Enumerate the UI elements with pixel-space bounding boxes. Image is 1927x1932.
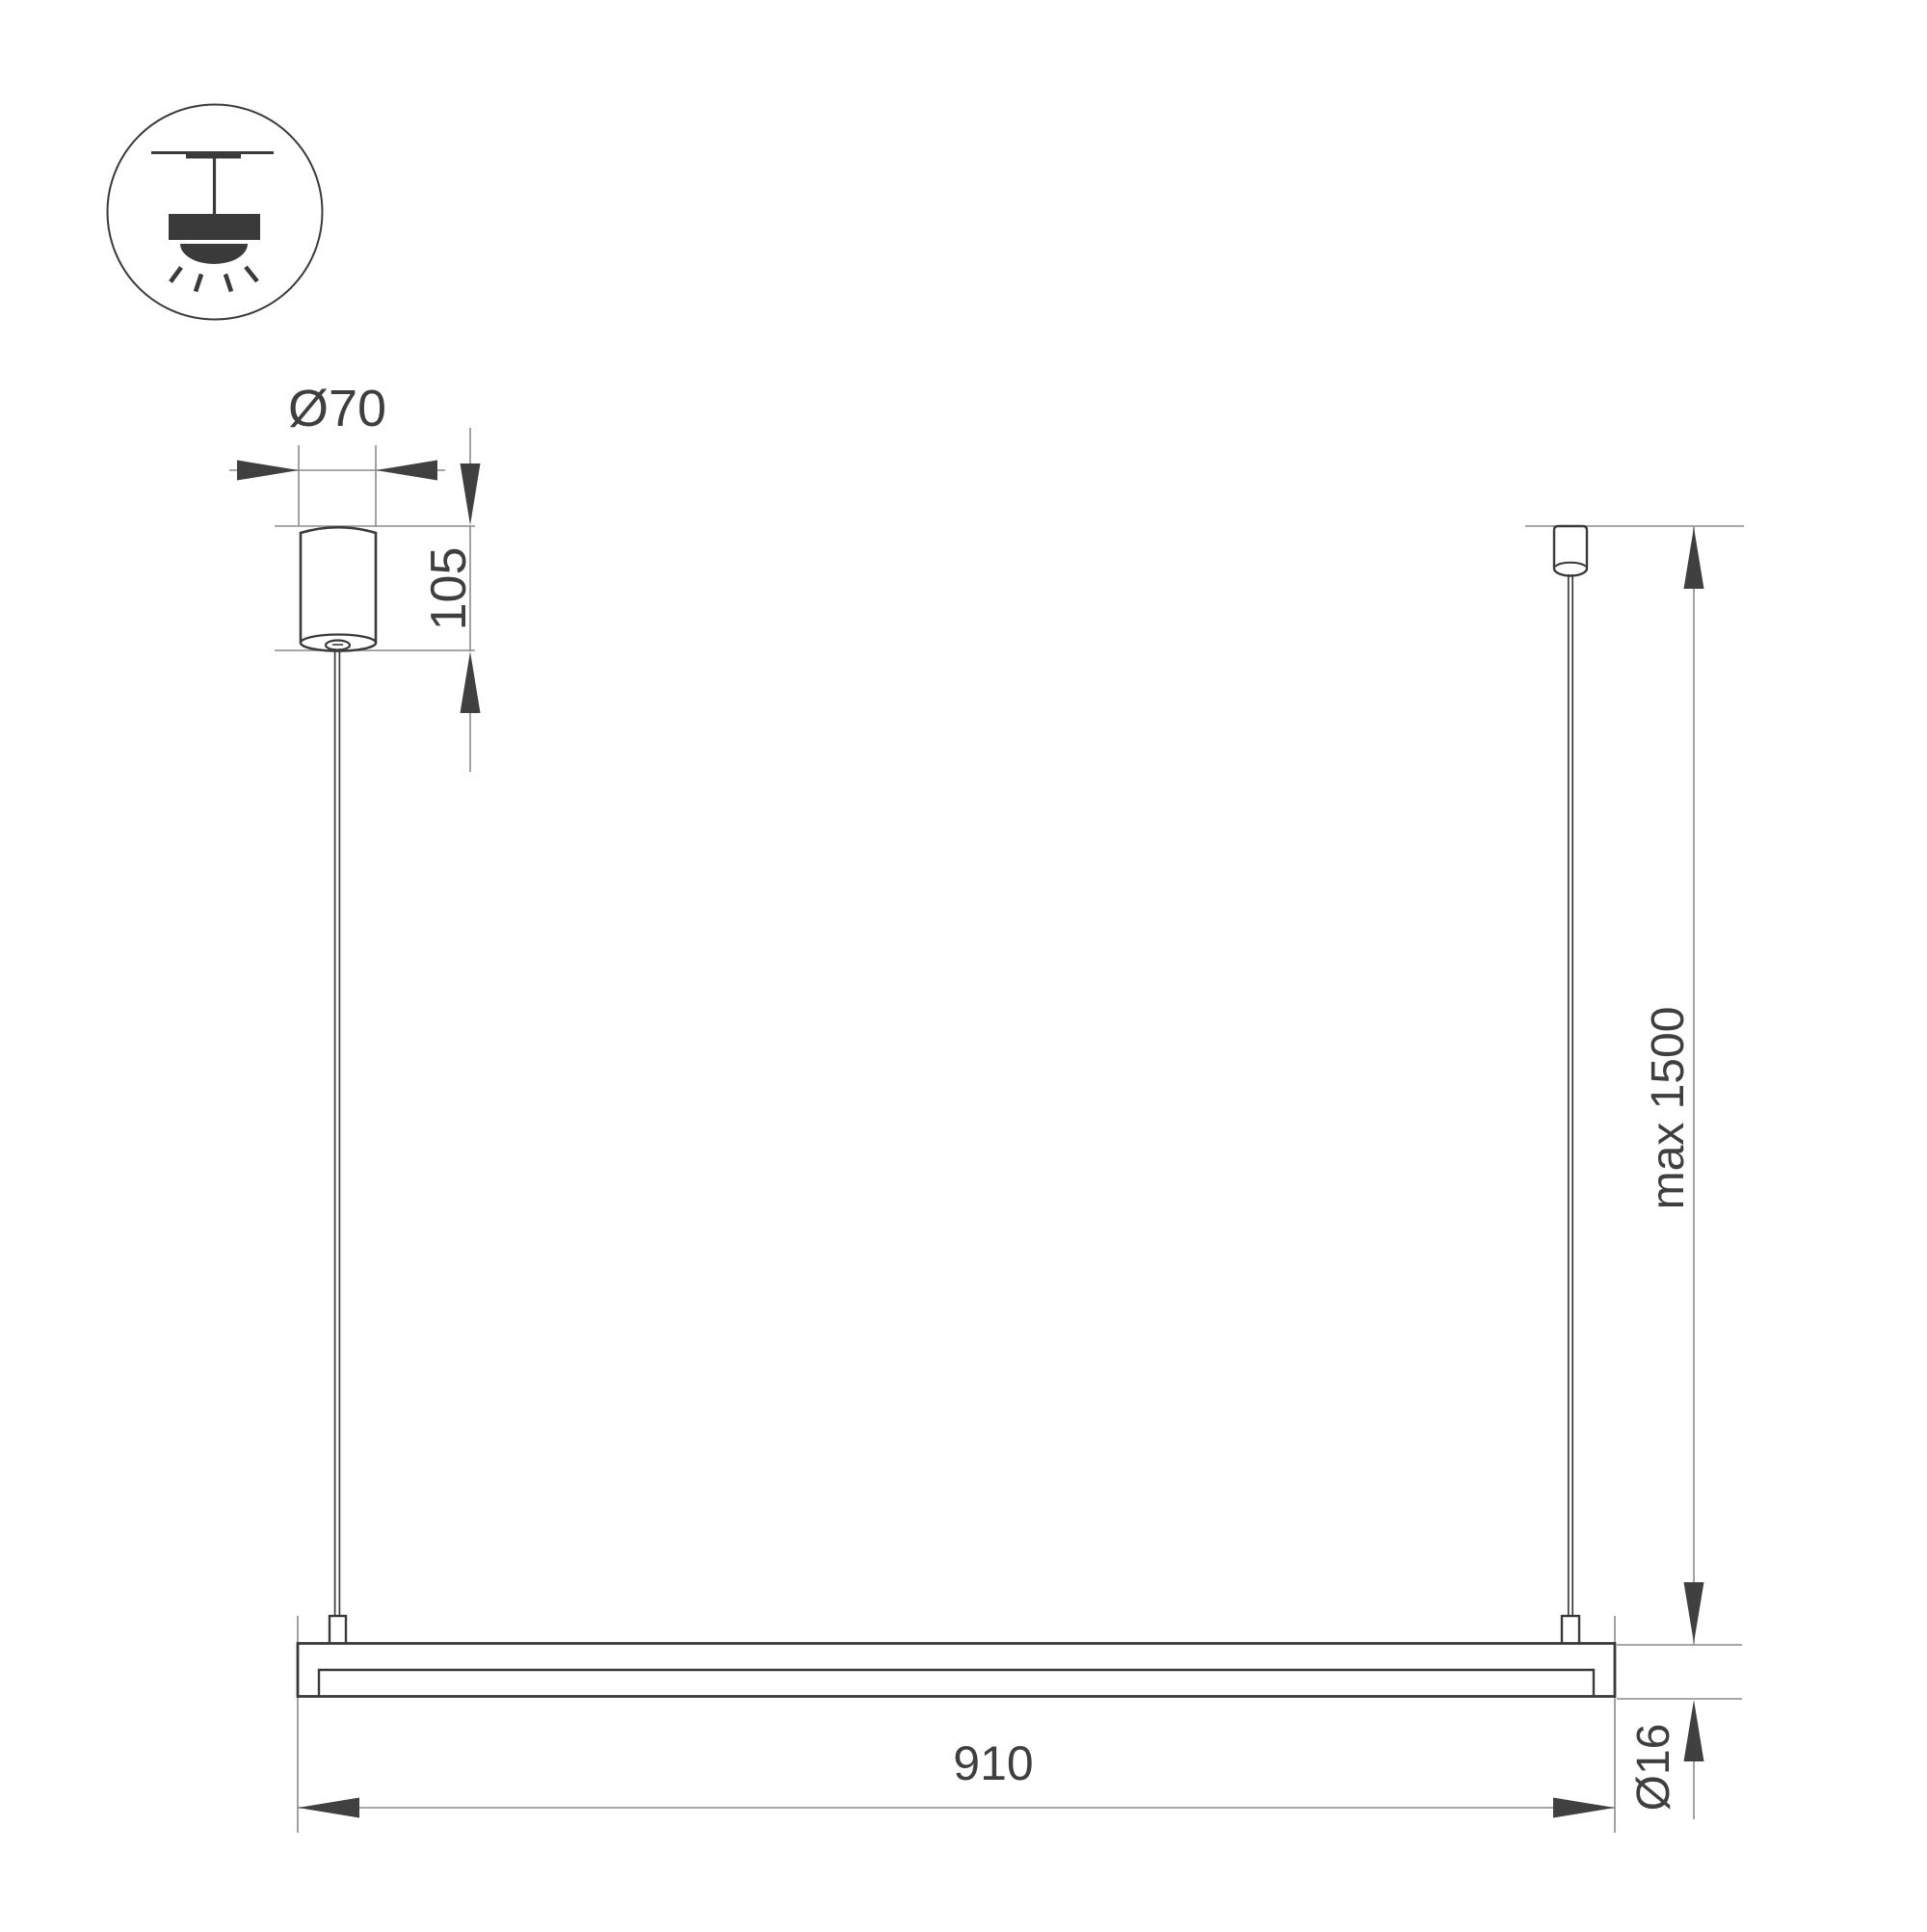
light-ray <box>196 275 201 292</box>
wire-lines <box>1569 574 1572 1616</box>
wire-grip-right <box>1562 1616 1579 1645</box>
canopy-right <box>1554 526 1587 576</box>
canopy-body <box>301 527 376 650</box>
technical-drawing-page: Ø70 105 max 1500 910 Ø16 <box>0 0 1927 1927</box>
arrow-right-icon <box>237 461 299 481</box>
arrow-up-icon <box>461 651 481 713</box>
fixture-length-label: 910 <box>953 1736 1033 1790</box>
arrow-up-icon <box>1684 1700 1704 1761</box>
icon-fixture-body <box>169 214 260 240</box>
arrow-down-icon <box>461 463 481 525</box>
canopy-body <box>1554 526 1587 576</box>
suspension-wire-right <box>1569 574 1572 1616</box>
light-ray <box>246 267 257 281</box>
suspension-wire-left <box>335 648 340 1616</box>
dimension-arrows <box>237 461 1704 1818</box>
arrow-left-icon <box>298 1798 359 1818</box>
icon-light-rays <box>171 267 257 292</box>
dimension-lines <box>229 428 1744 1833</box>
light-ray <box>225 275 231 292</box>
canopy-left <box>301 527 376 650</box>
canopy-diameter-label: Ø70 <box>288 380 386 437</box>
arrow-right-icon <box>1553 1798 1615 1818</box>
arrow-up-icon <box>1684 527 1704 589</box>
ceiling-pendant-mount-icon <box>108 105 323 320</box>
arrow-left-icon <box>376 461 437 481</box>
icon-canopy-plate <box>186 151 241 159</box>
light-ray <box>171 268 181 282</box>
suspension-max-label: max 1500 <box>1643 1007 1694 1210</box>
dimension-drawing: Ø70 105 max 1500 910 Ø16 <box>0 0 1927 1927</box>
arrow-down-icon <box>1684 1582 1704 1643</box>
wire-lines <box>335 648 340 1616</box>
icon-light-dome <box>180 244 248 264</box>
fixture-diameter-label: Ø16 <box>1628 1724 1679 1812</box>
wire-grip-left <box>330 1616 346 1645</box>
light-bar <box>298 1644 1615 1697</box>
canopy-height-label: 105 <box>421 547 477 631</box>
